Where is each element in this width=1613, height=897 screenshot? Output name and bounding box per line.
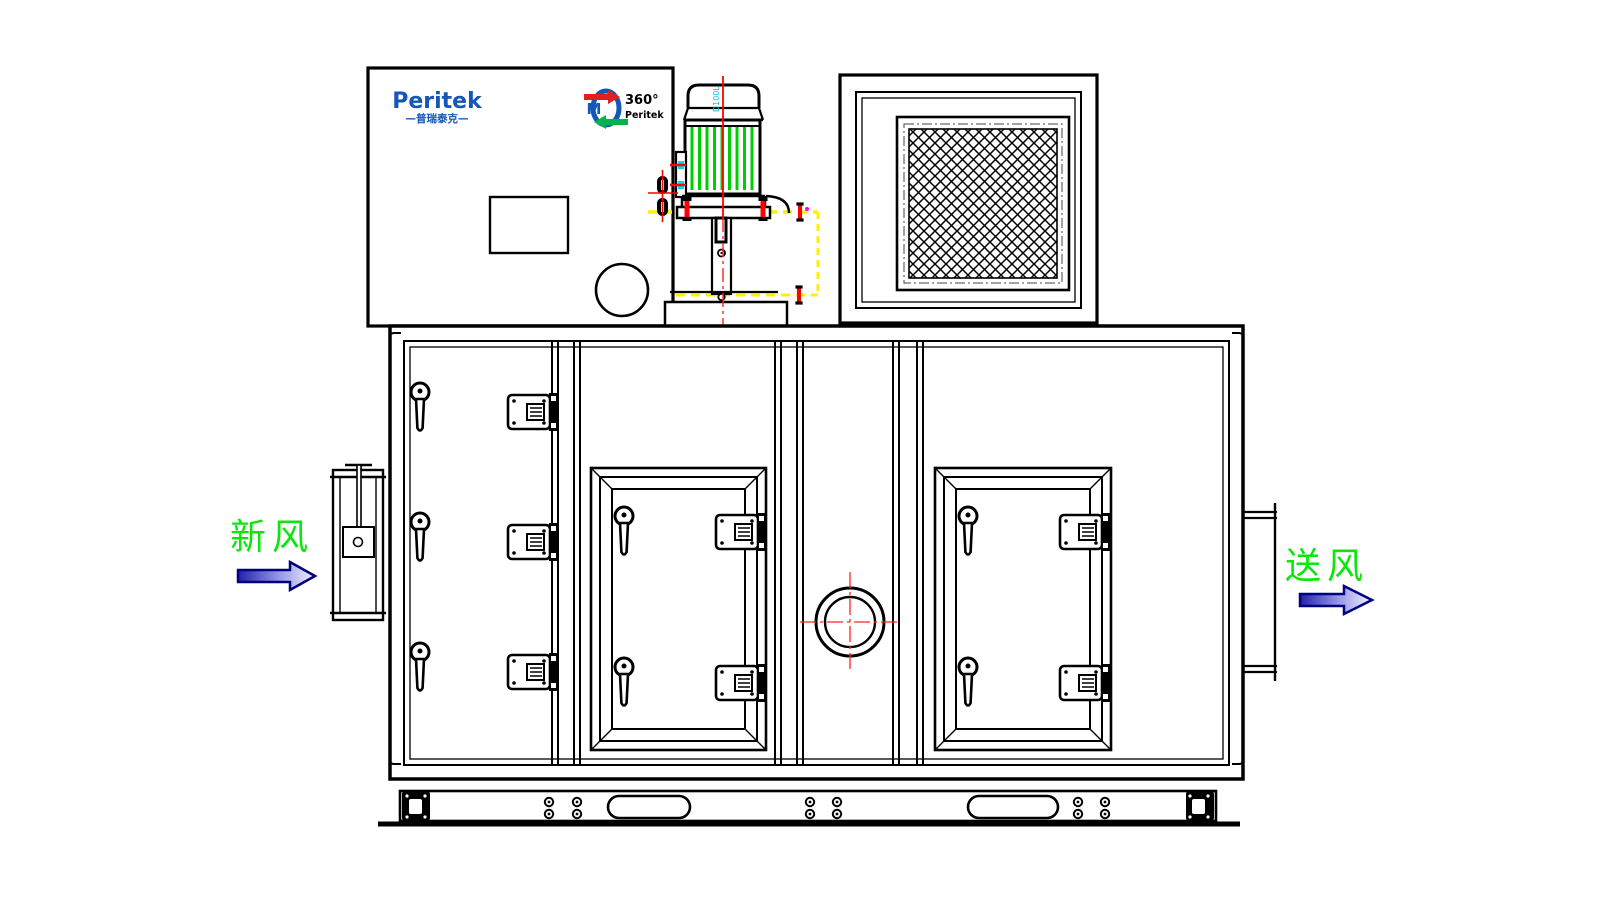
base-anchor-left [402, 791, 430, 821]
base-bolt-hole [545, 798, 553, 806]
filter-mesh [909, 129, 1057, 278]
outlet-flange-bars [1243, 512, 1277, 672]
base-bolt-hole [1101, 798, 1109, 806]
supply-air-outlet: 送风 [1243, 503, 1372, 681]
access-door-middle [591, 468, 766, 750]
base-bolt-hole [573, 798, 581, 806]
base-bolt-hole [573, 810, 581, 818]
peritek-logo-text: Peritek [392, 89, 483, 114]
base-bolt-hole [1101, 810, 1109, 818]
damper-actuator [343, 527, 374, 557]
access-door-right [935, 468, 1111, 750]
fresh-air-arrow-icon [238, 562, 315, 590]
panel-hinge-1 [549, 393, 558, 431]
base-bolt-hole [545, 810, 553, 818]
base-anchor-right [1186, 791, 1214, 821]
filter-box [840, 75, 1097, 323]
base-bolt-hole [806, 798, 814, 806]
forklift-slot-right [968, 796, 1058, 818]
panel-latch-3[interactable] [508, 655, 550, 689]
terminal-box [676, 152, 686, 197]
motor-fins [692, 127, 752, 190]
door-hinge-2 [1101, 664, 1110, 702]
door-latch-1[interactable] [716, 515, 758, 549]
motor-frame-label: D100L [712, 86, 721, 112]
base-bolt-hole [1074, 798, 1082, 806]
supply-air-label: 送风 [1285, 546, 1369, 587]
base-bolt-hole [833, 810, 841, 818]
equipment-front-elevation: Peritek —普瑞泰克— M 360° Peritek D100L [0, 0, 1613, 897]
door-latch-2[interactable] [1060, 666, 1102, 700]
base-bolt-hole [806, 810, 814, 818]
damper-rod [357, 465, 361, 527]
fan-plinth [665, 302, 787, 326]
panel-latch-1[interactable] [508, 395, 550, 429]
supply-air-arrow-icon [1300, 586, 1372, 614]
nameplate [490, 197, 568, 253]
base-bolt-hole [1074, 810, 1082, 818]
panel-hinge-3 [549, 653, 558, 691]
door-hinge-1 [1101, 513, 1110, 551]
peritek-logo-subtext: —普瑞泰克— [406, 112, 469, 125]
cable-gland [596, 264, 648, 316]
control-cabinet: Peritek —普瑞泰克— M 360° Peritek [368, 68, 673, 326]
fresh-air-inlet: 新风 [230, 465, 386, 620]
door-hinge-2 [757, 664, 766, 702]
base-frame [378, 791, 1240, 824]
door-hinge-1 [757, 513, 766, 551]
pedestal-hole-lower [718, 294, 724, 300]
rotor-m-glyph: M [587, 100, 602, 118]
door-latch-1[interactable] [1060, 515, 1102, 549]
cad-drawing-canvas: Peritek —普瑞泰克— M 360° Peritek D100L [0, 0, 1613, 897]
forklift-slot-left [608, 796, 690, 818]
pedestal-hole-upper-dot [720, 252, 722, 254]
panel-hinge-2 [549, 523, 558, 561]
drive-shaft [716, 218, 726, 242]
rotor-brand-text: Peritek [625, 110, 664, 121]
rotor-angle-text: 360° [625, 93, 659, 108]
fresh-air-label: 新风 [230, 517, 314, 558]
door-latch-2[interactable] [716, 666, 758, 700]
base-bolt-hole [833, 798, 841, 806]
snap-point-marker [805, 207, 809, 211]
panel-latch-2[interactable] [508, 525, 550, 559]
